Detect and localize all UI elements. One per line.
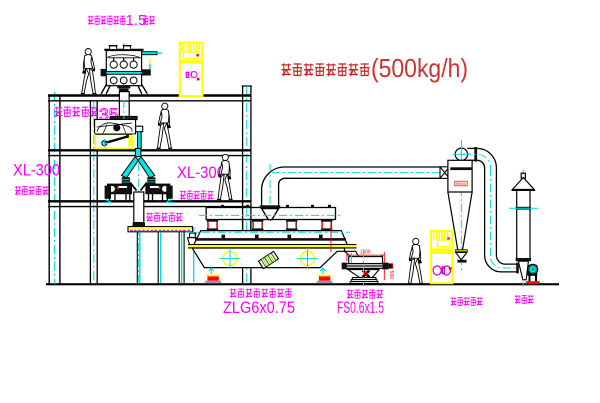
- svg-text:ZLG6x0.75: ZLG6x0.75: [223, 298, 295, 317]
- svg-text:Φ600: Φ600: [456, 181, 467, 186]
- svg-text:FS0.6x1.5: FS0.6x1.5: [337, 298, 384, 317]
- svg-text:500: 500: [388, 271, 394, 280]
- svg-text:XL-300: XL-300: [13, 161, 60, 180]
- svg-text:(500kg/h): (500kg/h): [371, 53, 468, 83]
- svg-text:1500: 1500: [360, 249, 371, 255]
- svg-text:XL-300: XL-300: [177, 163, 225, 182]
